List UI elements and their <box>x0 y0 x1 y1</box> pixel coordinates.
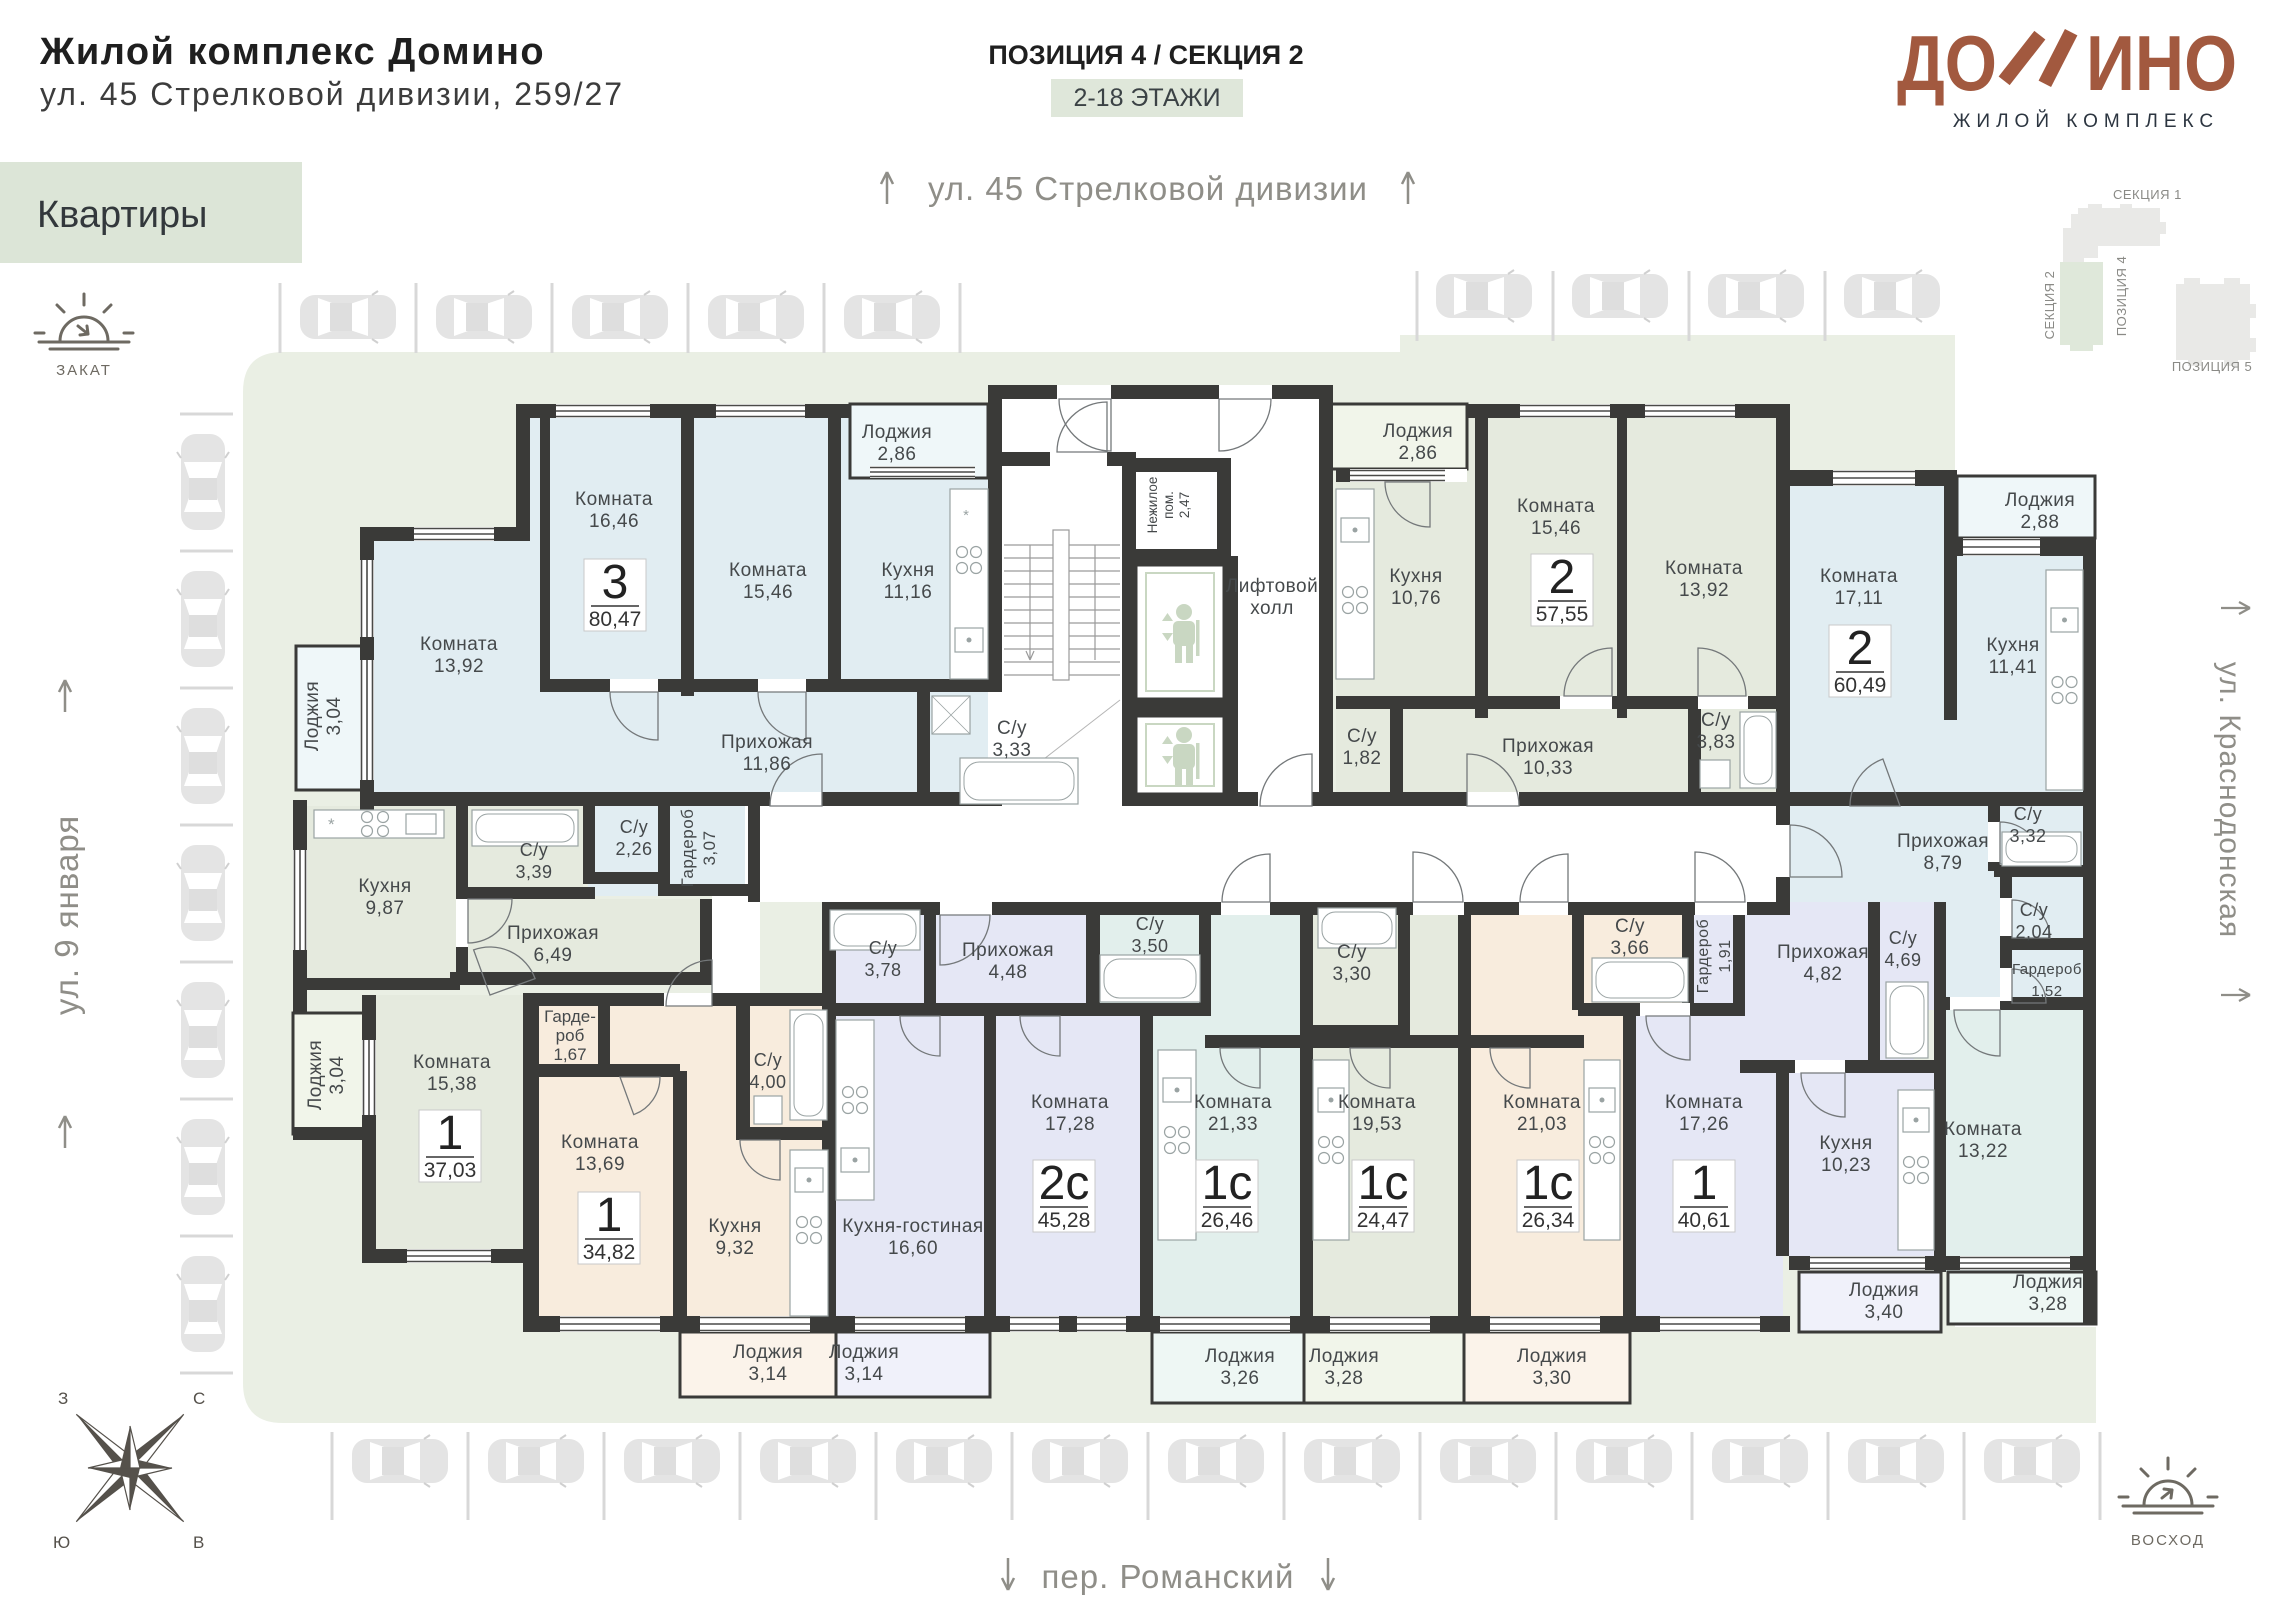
svg-text:80,47: 80,47 <box>589 608 642 631</box>
svg-text:17,26: 17,26 <box>1679 1114 1729 1135</box>
svg-text:1: 1 <box>1691 1157 1718 1210</box>
svg-text:Гардероб: Гардероб <box>678 809 697 888</box>
svg-text:ВОСХОД: ВОСХОД <box>2131 1532 2205 1549</box>
svg-text:*: * <box>963 507 969 524</box>
svg-text:1,52: 1,52 <box>2031 983 2062 1000</box>
svg-text:С/у: С/у <box>520 840 549 860</box>
svg-text:Лоджия: Лоджия <box>862 422 932 443</box>
svg-text:2,26: 2,26 <box>615 839 652 859</box>
svg-text:Прихожая: Прихожая <box>1502 736 1594 757</box>
svg-text:3,26: 3,26 <box>1221 1368 1260 1389</box>
svg-text:3,28: 3,28 <box>2029 1294 2068 1315</box>
svg-text:Комната: Комната <box>420 634 498 655</box>
svg-text:3,39: 3,39 <box>515 862 552 882</box>
svg-text:10,76: 10,76 <box>1391 588 1441 609</box>
svg-text:1,67: 1,67 <box>553 1045 586 1064</box>
svg-text:ул. Краснодонская: ул. Краснодонская <box>2213 662 2246 938</box>
svg-text:Комната: Комната <box>1665 1092 1743 1113</box>
svg-text:С/у: С/у <box>2014 804 2043 824</box>
svg-text:10,33: 10,33 <box>1523 758 1573 779</box>
svg-text:Комната: Комната <box>1031 1092 1109 1113</box>
svg-text:17,11: 17,11 <box>1835 588 1884 609</box>
svg-text:3,04: 3,04 <box>327 1056 348 1095</box>
svg-text:З: З <box>58 1389 68 1408</box>
svg-text:3,32: 3,32 <box>2009 826 2046 846</box>
svg-text:4,82: 4,82 <box>1804 964 1843 985</box>
svg-text:21,33: 21,33 <box>1208 1114 1258 1135</box>
svg-text:С/у: С/у <box>754 1050 783 1070</box>
svg-text:57,55: 57,55 <box>1536 603 1589 626</box>
svg-text:Прихожая: Прихожая <box>1897 831 1989 852</box>
svg-text:8,79: 8,79 <box>1924 853 1963 874</box>
svg-text:3,28: 3,28 <box>1325 1368 1364 1389</box>
svg-text:холл: холл <box>1250 598 1294 619</box>
svg-text:34,82: 34,82 <box>583 1241 636 1264</box>
svg-text:Комната: Комната <box>1665 558 1743 579</box>
svg-text:Кухня: Кухня <box>1819 1133 1872 1154</box>
svg-text:пер. Романский: пер. Романский <box>1042 1558 1295 1595</box>
svg-text:Кухня: Кухня <box>1986 635 2039 656</box>
svg-text:ИНО: ИНО <box>2086 19 2237 107</box>
svg-text:ПОЗИЦИЯ 5: ПОЗИЦИЯ 5 <box>2172 359 2252 374</box>
svg-text:Лоджия: Лоджия <box>2013 1272 2083 1293</box>
svg-text:Кухня: Кухня <box>1389 566 1442 587</box>
svg-text:26,46: 26,46 <box>1201 1209 1254 1232</box>
svg-text:Лоджия: Лоджия <box>1309 1346 1379 1367</box>
svg-text:3,40: 3,40 <box>1865 1302 1904 1323</box>
svg-text:3,14: 3,14 <box>749 1364 788 1385</box>
svg-text:15,46: 15,46 <box>1531 518 1581 539</box>
svg-text:13,69: 13,69 <box>575 1154 625 1175</box>
svg-text:С/у: С/у <box>1337 942 1367 963</box>
svg-text:1с: 1с <box>1202 1157 1253 1210</box>
svg-text:2: 2 <box>1549 551 1576 604</box>
svg-text:6,49: 6,49 <box>534 945 573 966</box>
svg-text:ЖИЛОЙ КОМПЛЕКС: ЖИЛОЙ КОМПЛЕКС <box>1953 110 2219 132</box>
svg-text:Ю: Ю <box>53 1533 70 1552</box>
svg-text:Кухня: Кухня <box>881 560 934 581</box>
svg-text:10,23: 10,23 <box>1821 1155 1871 1176</box>
svg-text:Прихожая: Прихожая <box>1777 942 1869 963</box>
svg-text:ЗАКАТ: ЗАКАТ <box>56 362 112 379</box>
svg-text:11,86: 11,86 <box>743 754 792 775</box>
svg-text:СЕКЦИЯ 2: СЕКЦИЯ 2 <box>2042 271 2057 340</box>
svg-text:Лоджия: Лоджия <box>1205 1346 1275 1367</box>
svg-text:ПОЗИЦИЯ 4: ПОЗИЦИЯ 4 <box>2114 256 2129 336</box>
svg-text:3,14: 3,14 <box>845 1364 884 1385</box>
svg-text:Кухня: Кухня <box>708 1216 761 1237</box>
svg-text:40,61: 40,61 <box>1678 1209 1731 1232</box>
svg-text:*: * <box>328 815 335 834</box>
svg-text:Лоджия: Лоджия <box>302 681 323 751</box>
svg-text:21,03: 21,03 <box>1517 1114 1567 1135</box>
svg-text:Лифтовой: Лифтовой <box>1226 576 1318 597</box>
svg-text:1,82: 1,82 <box>1343 748 1382 769</box>
svg-text:2,86: 2,86 <box>1399 443 1438 464</box>
svg-text:пом.: пом. <box>1161 491 1176 519</box>
svg-text:Лоджия: Лоджия <box>1383 421 1453 442</box>
svg-text:Кухня-гостиная: Кухня-гостиная <box>842 1216 983 1237</box>
svg-text:Комната: Комната <box>413 1052 491 1073</box>
svg-text:Комната: Комната <box>1194 1092 1272 1113</box>
svg-text:24,47: 24,47 <box>1357 1209 1410 1232</box>
svg-text:3,83: 3,83 <box>1697 732 1736 753</box>
svg-text:Прихожая: Прихожая <box>507 923 599 944</box>
svg-text:С/у: С/у <box>997 718 1027 739</box>
svg-text:13,92: 13,92 <box>434 656 484 677</box>
svg-text:С/у: С/у <box>1889 928 1918 948</box>
svg-text:Комната: Комната <box>729 560 807 581</box>
svg-text:45,28: 45,28 <box>1038 1209 1091 1232</box>
svg-text:2,88: 2,88 <box>2021 512 2060 533</box>
svg-text:Лоджия: Лоджия <box>2005 490 2075 511</box>
svg-text:1: 1 <box>437 1107 464 1160</box>
svg-text:ул. 45 Стрелковой дивизии: ул. 45 Стрелковой дивизии <box>928 170 1368 207</box>
svg-text:13,92: 13,92 <box>1679 580 1729 601</box>
svg-text:2,04: 2,04 <box>2015 922 2052 942</box>
svg-text:37,03: 37,03 <box>424 1159 477 1182</box>
svg-text:С/у: С/у <box>1136 914 1165 934</box>
svg-text:В: В <box>193 1533 204 1552</box>
svg-text:3,78: 3,78 <box>864 960 901 980</box>
svg-text:16,60: 16,60 <box>888 1238 938 1259</box>
svg-text:2,86: 2,86 <box>878 444 917 465</box>
svg-text:Квартиры: Квартиры <box>37 194 207 236</box>
svg-text:13,22: 13,22 <box>1958 1141 2008 1162</box>
svg-text:ул. 45 Стрелковой дивизии, 259: ул. 45 Стрелковой дивизии, 259/27 <box>40 76 624 112</box>
svg-text:2: 2 <box>1847 622 1874 675</box>
svg-text:Прихожая: Прихожая <box>962 940 1054 961</box>
svg-text:Лоджия: Лоджия <box>733 1342 803 1363</box>
svg-text:С/у: С/у <box>2020 900 2049 920</box>
svg-text:Гардероб: Гардероб <box>1695 919 1712 993</box>
svg-text:16,46: 16,46 <box>589 511 639 532</box>
svg-text:1,91: 1,91 <box>1717 939 1734 972</box>
svg-text:9,32: 9,32 <box>716 1238 755 1259</box>
svg-text:2с: 2с <box>1039 1157 1090 1210</box>
svg-text:С/у: С/у <box>869 938 898 958</box>
svg-text:С/у: С/у <box>1701 710 1731 731</box>
svg-text:Комната: Комната <box>1503 1092 1581 1113</box>
svg-text:19,53: 19,53 <box>1352 1114 1402 1135</box>
svg-text:4,69: 4,69 <box>1884 950 1921 970</box>
svg-text:С/у: С/у <box>620 817 649 837</box>
svg-text:3: 3 <box>602 556 629 609</box>
svg-text:4,00: 4,00 <box>749 1072 786 1092</box>
svg-text:Комната: Комната <box>1338 1092 1416 1113</box>
svg-text:С/у: С/у <box>1615 916 1645 937</box>
svg-text:9,87: 9,87 <box>366 898 405 919</box>
svg-text:3,33: 3,33 <box>993 740 1032 761</box>
svg-text:3,07: 3,07 <box>700 830 719 865</box>
svg-text:С/у: С/у <box>1347 726 1377 747</box>
svg-text:1с: 1с <box>1523 1157 1574 1210</box>
svg-text:3,50: 3,50 <box>1131 936 1168 956</box>
svg-text:Комната: Комната <box>575 489 653 510</box>
svg-text:Лоджия: Лоджия <box>829 1342 899 1363</box>
svg-text:3,30: 3,30 <box>1533 1368 1572 1389</box>
svg-text:11,41: 11,41 <box>1989 657 2038 678</box>
svg-text:Комната: Комната <box>1517 496 1595 517</box>
svg-text:60,49: 60,49 <box>1834 674 1887 697</box>
svg-text:11,16: 11,16 <box>884 582 933 603</box>
svg-text:15,46: 15,46 <box>743 582 793 603</box>
svg-text:Лоджия: Лоджия <box>1849 1280 1919 1301</box>
svg-text:С: С <box>193 1389 205 1408</box>
svg-text:15,38: 15,38 <box>427 1074 477 1095</box>
svg-text:Жилой комплекс Домино: Жилой комплекс Домино <box>39 31 545 73</box>
svg-text:2-18 ЭТАЖИ: 2-18 ЭТАЖИ <box>1073 84 1220 112</box>
svg-text:Гардероб: Гардероб <box>2012 961 2082 978</box>
svg-text:1с: 1с <box>1358 1157 1409 1210</box>
svg-text:Лоджия: Лоджия <box>1517 1346 1587 1367</box>
svg-text:3,04: 3,04 <box>324 697 345 736</box>
svg-text:2,47: 2,47 <box>1177 492 1192 518</box>
svg-text:1: 1 <box>596 1189 623 1242</box>
svg-text:Прихожая: Прихожая <box>721 732 813 753</box>
svg-text:Нежилое: Нежилое <box>1145 477 1160 534</box>
svg-text:26,34: 26,34 <box>1522 1209 1575 1232</box>
svg-text:ДО: ДО <box>1897 19 1997 107</box>
svg-text:СЕКЦИЯ 1: СЕКЦИЯ 1 <box>2113 187 2182 202</box>
svg-text:Комната: Комната <box>561 1132 639 1153</box>
svg-text:Гарде-: Гарде- <box>544 1007 596 1026</box>
svg-text:4,48: 4,48 <box>989 962 1028 983</box>
svg-text:Комната: Комната <box>1944 1119 2022 1140</box>
svg-text:роб: роб <box>556 1026 585 1045</box>
svg-text:Лоджия: Лоджия <box>305 1040 326 1110</box>
svg-text:3,66: 3,66 <box>1611 938 1650 959</box>
svg-text:Кухня: Кухня <box>358 876 411 897</box>
svg-text:17,28: 17,28 <box>1045 1114 1095 1135</box>
svg-text:ул. 9 января: ул. 9 января <box>48 815 85 1015</box>
svg-text:Комната: Комната <box>1820 566 1898 587</box>
svg-text:3,30: 3,30 <box>1333 964 1372 985</box>
svg-text:ПОЗИЦИЯ 4 / СЕКЦИЯ 2: ПОЗИЦИЯ 4 / СЕКЦИЯ 2 <box>988 40 1303 70</box>
